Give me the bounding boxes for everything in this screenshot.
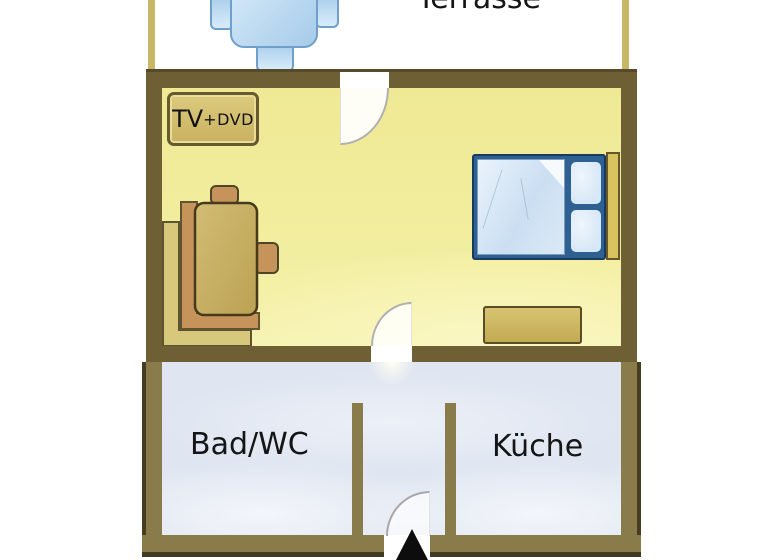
wall-bottom-left-segment <box>142 535 384 557</box>
hallway-wall-left <box>352 403 363 535</box>
terrace-table-icon <box>230 0 318 48</box>
stool-right-icon <box>255 243 278 273</box>
kitchen-label: Küche <box>492 430 583 463</box>
hallway-door-opening <box>371 346 412 362</box>
floor-plan: Terrasse TV+DVD <box>0 0 768 560</box>
dresser-icon <box>483 306 582 344</box>
hallway-wall-right <box>445 403 456 535</box>
sofa-table-icon <box>195 203 257 315</box>
terrace-label: Terrasse <box>417 0 541 15</box>
wall-left-main <box>146 72 162 362</box>
terrace-door-opening <box>340 72 389 88</box>
entrance-arrow-icon <box>396 529 428 560</box>
corner-bench-sofa-with-table-icon <box>150 178 280 350</box>
stool-top-icon <box>211 186 238 204</box>
tv-dvd-cabinet-icon: TV+DVD <box>167 92 259 146</box>
terrace-chair-right-icon <box>315 0 339 28</box>
wall-right-main <box>621 72 637 362</box>
wall-bottom-right-segment <box>430 535 641 557</box>
bed-headboard-icon <box>606 152 620 260</box>
wall-right-lower <box>621 362 641 552</box>
terrace-fence-left <box>148 0 155 74</box>
wall-top <box>146 72 637 88</box>
bath-label: Bad/WC <box>190 428 309 461</box>
pillow-icon <box>569 160 603 206</box>
wall-left-lower <box>142 362 162 552</box>
terrace-fence-right <box>622 0 629 74</box>
hallway-door-glow <box>364 362 420 410</box>
tv-label: TV <box>172 105 203 133</box>
dvd-label: +DVD <box>203 110 254 129</box>
pillow-icon <box>569 208 603 254</box>
